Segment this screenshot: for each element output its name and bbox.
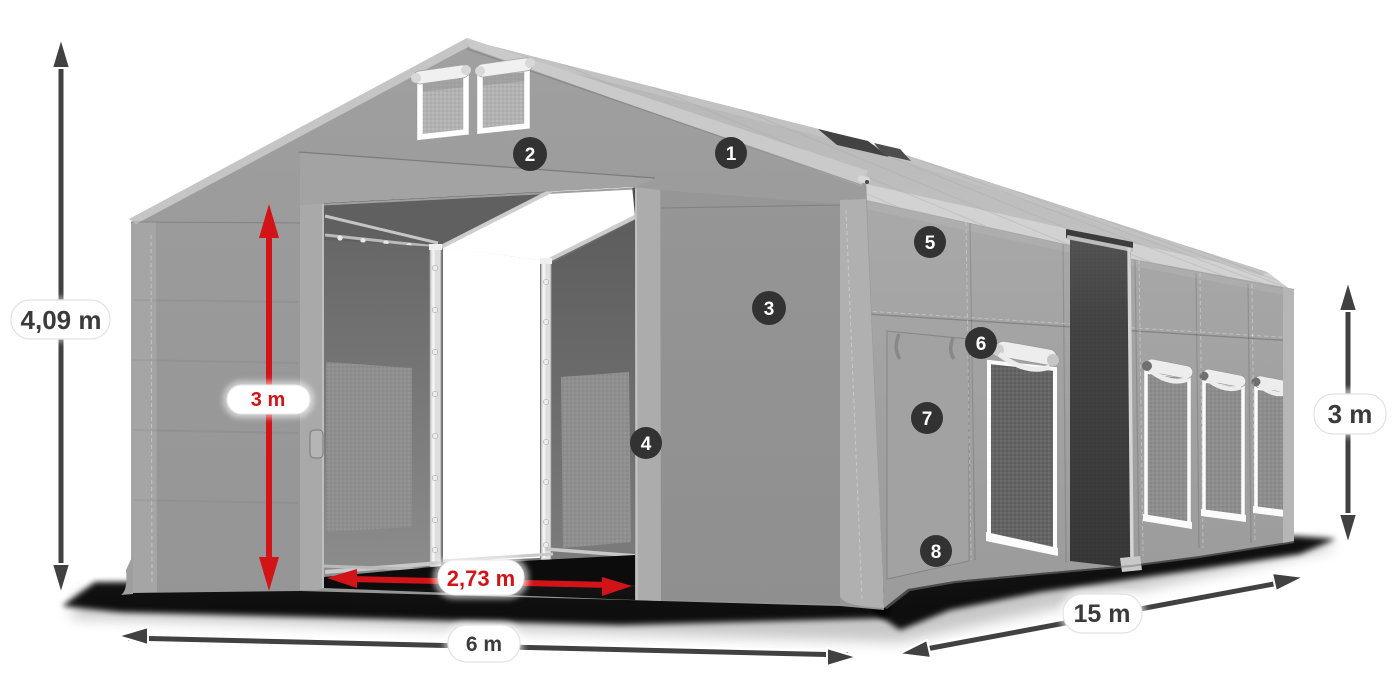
svg-text:6 m: 6 m [466,633,502,656]
svg-text:3: 3 [764,299,775,320]
svg-text:3 m: 3 m [1328,399,1373,429]
svg-text:7: 7 [922,409,933,430]
svg-text:5: 5 [925,233,936,254]
svg-text:2: 2 [525,145,536,166]
svg-text:1: 1 [726,144,737,165]
svg-text:6: 6 [976,334,987,355]
svg-text:15 m: 15 m [1074,600,1131,628]
svg-text:3 m: 3 m [251,389,285,411]
svg-text:4: 4 [641,434,652,455]
svg-text:4,09 m: 4,09 m [21,305,102,335]
svg-text:2,73 m: 2,73 m [447,566,516,591]
svg-text:8: 8 [931,542,942,563]
